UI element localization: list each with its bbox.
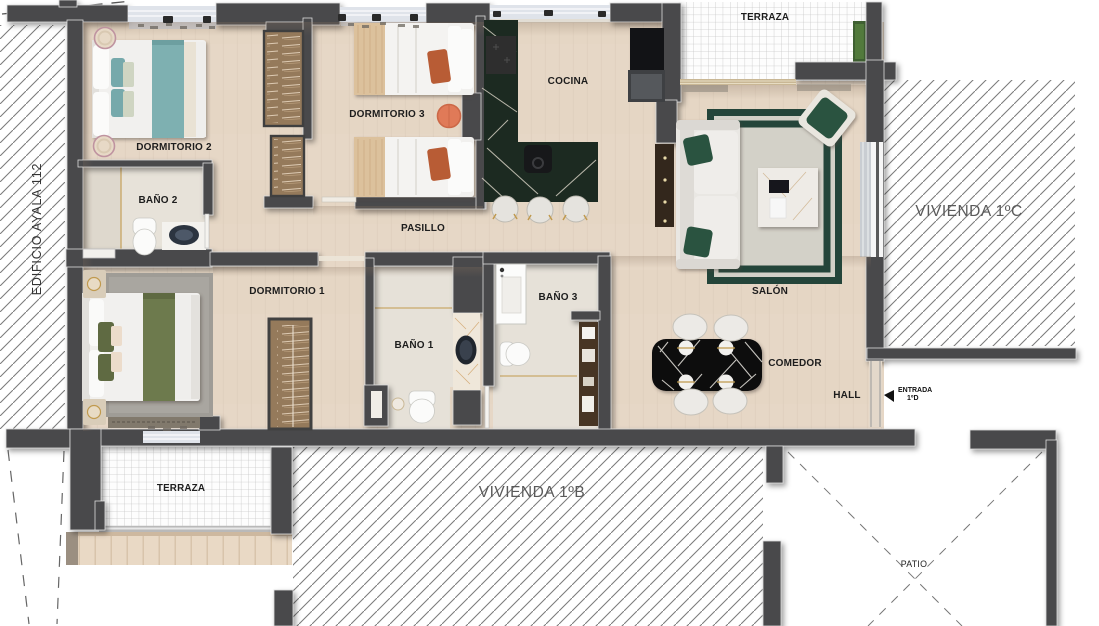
svg-text:PATIO: PATIO [901,559,928,569]
svg-text:EDIFICIO AYALA 112: EDIFICIO AYALA 112 [30,163,44,296]
svg-text:VIVIENDA 1ºC: VIVIENDA 1ºC [915,203,1022,220]
svg-text:VIVIENDA 1ºB: VIVIENDA 1ºB [479,484,585,501]
svg-text:BAÑO 1: BAÑO 1 [395,338,434,351]
svg-text:PASILLO: PASILLO [401,223,445,234]
svg-text:DORMITORIO 3: DORMITORIO 3 [349,109,425,120]
svg-text:DORMITORIO 2: DORMITORIO 2 [136,142,212,153]
svg-text:TERRAZA: TERRAZA [157,483,205,494]
svg-text:BAÑO 3: BAÑO 3 [539,290,578,303]
svg-text:COMEDOR: COMEDOR [768,358,822,369]
svg-text:HALL: HALL [833,390,860,401]
svg-text:DORMITORIO 1: DORMITORIO 1 [249,286,325,297]
svg-text:TERRAZA: TERRAZA [741,12,789,23]
svg-text:SALÓN: SALÓN [752,284,788,297]
svg-text:BAÑO 2: BAÑO 2 [139,193,178,206]
svg-text:ENTRADA: ENTRADA [898,387,932,394]
svg-text:1ºD: 1ºD [907,395,919,402]
svg-text:COCINA: COCINA [548,76,589,87]
